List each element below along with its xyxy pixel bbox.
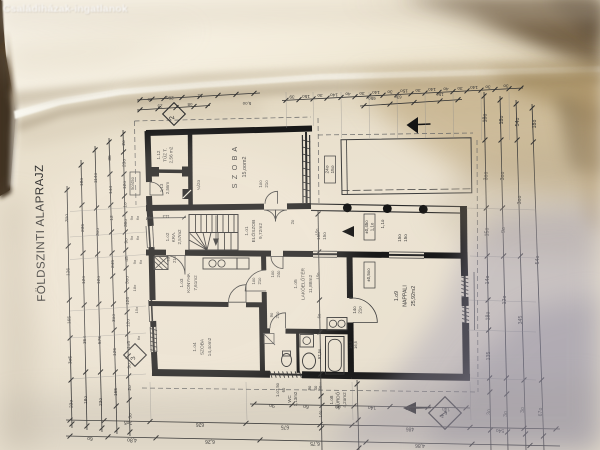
svg-text:3o: 3o <box>317 93 323 98</box>
svg-text:23: 23 <box>157 104 162 109</box>
svg-text:3o: 3o <box>485 84 491 89</box>
svg-text:3o: 3o <box>387 89 393 94</box>
svg-text:Családiházak-ingatlanok: Családiházak-ingatlanok <box>3 3 128 15</box>
svg-text:18o: 18o <box>483 114 489 123</box>
svg-text:±0,5oo: ±0,5oo <box>366 268 371 282</box>
svg-text:o8: o8 <box>187 102 192 107</box>
svg-text:3o: 3o <box>415 88 421 93</box>
svg-text:3o: 3o <box>359 91 365 96</box>
svg-text:4o: 4o <box>345 92 351 97</box>
svg-text:NAPPALI: NAPPALI <box>403 285 409 307</box>
svg-text:2o: 2o <box>127 385 133 391</box>
svg-text:18o: 18o <box>532 120 538 129</box>
svg-text:15o: 15o <box>403 234 408 242</box>
svg-text:14o: 14o <box>352 306 357 314</box>
svg-text:14o: 14o <box>372 90 380 95</box>
svg-text:25,92m2: 25,92m2 <box>411 286 417 306</box>
svg-text:3o5: 3o5 <box>68 356 74 364</box>
svg-text:18o: 18o <box>499 116 505 125</box>
svg-text:15o: 15o <box>436 92 444 97</box>
svg-text:12: 12 <box>197 94 202 99</box>
svg-text:39: 39 <box>289 94 295 99</box>
svg-text:21o: 21o <box>358 306 363 314</box>
svg-text:63o: 63o <box>394 95 402 100</box>
svg-text:1,1o: 1,1o <box>380 219 385 228</box>
svg-text:14o: 14o <box>428 87 436 92</box>
svg-text:14o: 14o <box>470 85 478 90</box>
svg-text:1,1o: 1,1o <box>370 222 375 231</box>
svg-text:±0,45o: ±0,45o <box>364 220 369 234</box>
svg-text:3o: 3o <box>457 86 463 91</box>
svg-text:65o: 65o <box>368 96 376 101</box>
svg-text:24o: 24o <box>325 165 331 173</box>
svg-text:16,5: 16,5 <box>353 340 358 349</box>
svg-text:1.o9: 1.o9 <box>394 291 400 301</box>
svg-text:4o: 4o <box>443 86 449 91</box>
svg-text:26o: 26o <box>166 96 174 101</box>
svg-text:14o: 14o <box>330 92 338 97</box>
svg-text:3o: 3o <box>503 83 509 88</box>
svg-text:15o: 15o <box>330 165 336 173</box>
svg-text:2o: 2o <box>121 140 127 146</box>
svg-text:3o: 3o <box>147 97 152 102</box>
svg-text:54o: 54o <box>515 118 521 127</box>
svg-text:97,5o: 97,5o <box>317 348 322 359</box>
svg-text:15o: 15o <box>302 94 310 99</box>
svg-text:15o: 15o <box>397 234 402 242</box>
svg-text:15o: 15o <box>400 89 408 94</box>
svg-text:5,oo: 5,oo <box>242 101 251 106</box>
